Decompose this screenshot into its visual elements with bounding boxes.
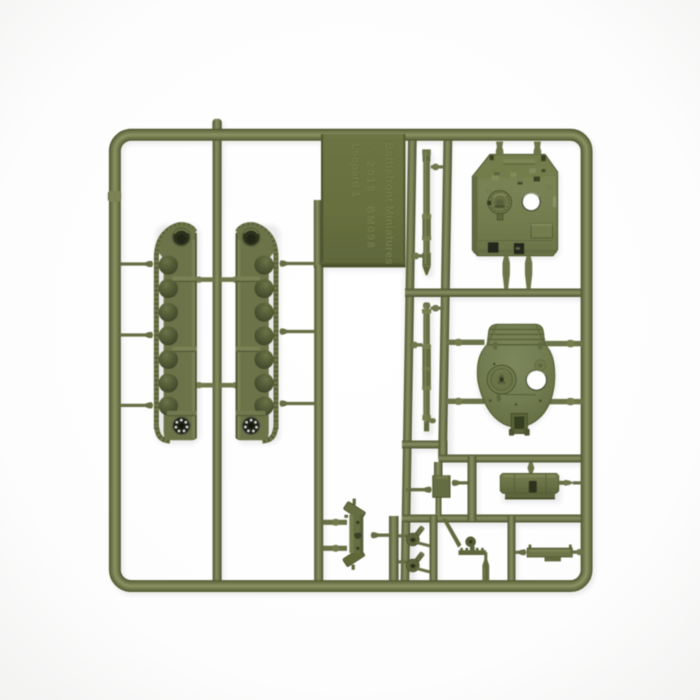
svg-text:Battlefront Miniatures: Battlefront Miniatures [383, 143, 395, 265]
svg-text:© 2018: © 2018 [364, 146, 376, 192]
svg-text:BM098: BM098 [364, 206, 376, 248]
svg-text:Leopard 1: Leopard 1 [349, 144, 361, 198]
